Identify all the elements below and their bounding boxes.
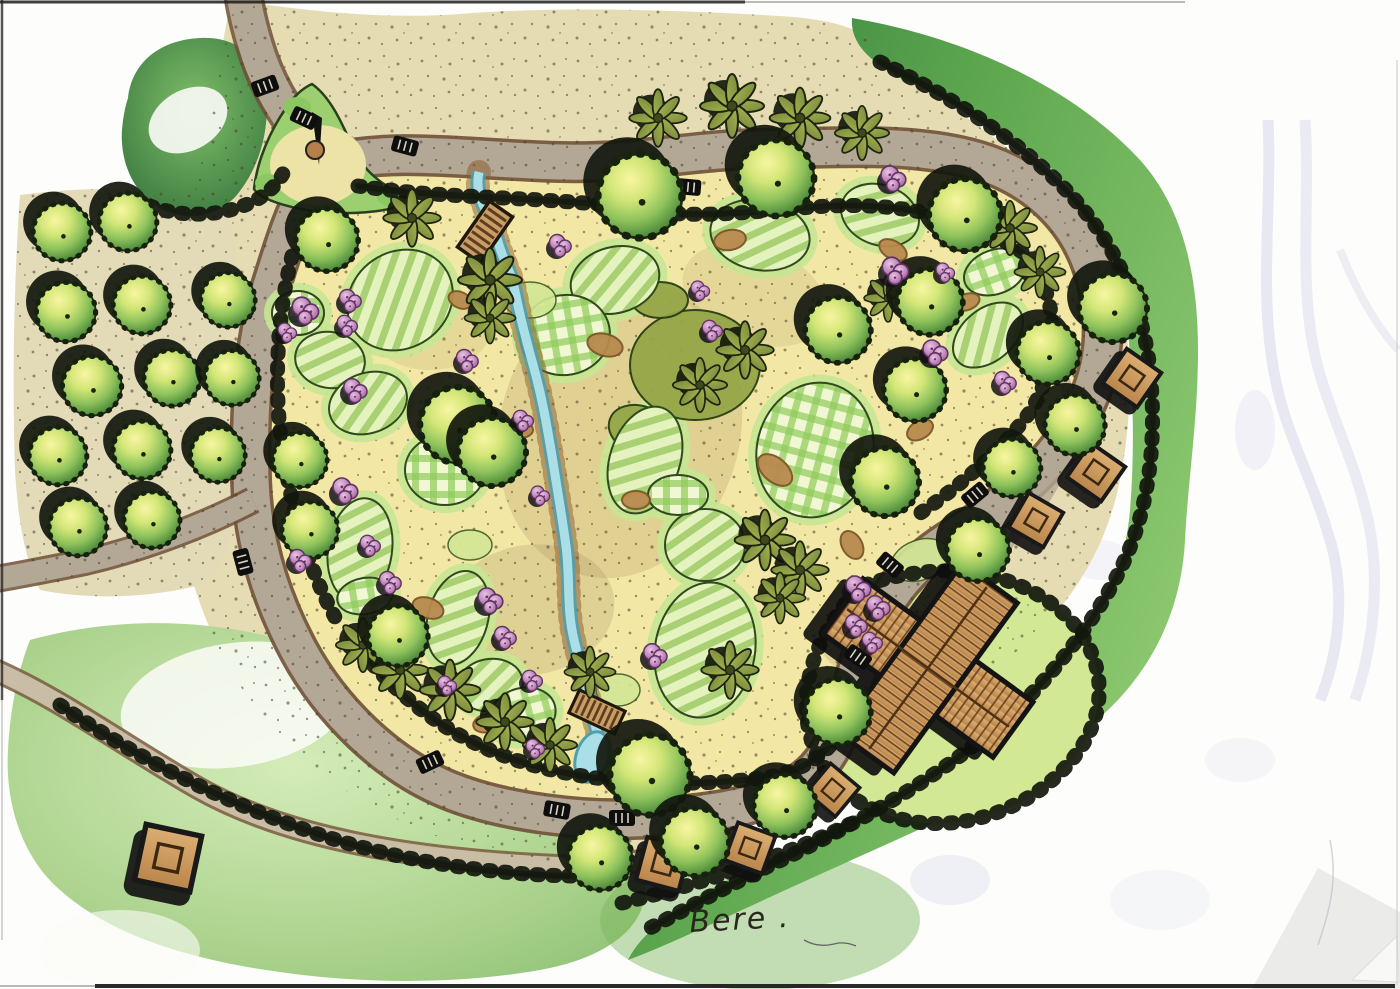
palm-tree — [383, 189, 441, 247]
artist-signature: Bere . — [689, 900, 792, 940]
palm-tree — [835, 106, 889, 160]
palm-tree — [701, 641, 759, 699]
mulch-patch — [622, 491, 650, 509]
palm-tree — [464, 292, 515, 343]
meadow-highlight — [40, 910, 200, 989]
planting-bed — [665, 509, 745, 581]
palm-tree — [673, 358, 727, 412]
palm-tree — [1014, 246, 1065, 297]
palm-tree — [629, 89, 687, 147]
palm-tree — [564, 646, 615, 697]
planting-bed — [648, 475, 708, 515]
palm-tree — [716, 321, 774, 379]
sundial-feature — [306, 141, 324, 159]
scanned-masterplan-page: Bere . — [0, 0, 1400, 989]
palm-tree — [754, 572, 805, 623]
planting-bed — [448, 530, 492, 560]
masterplan-drawing: Bere . — [0, 0, 1400, 989]
